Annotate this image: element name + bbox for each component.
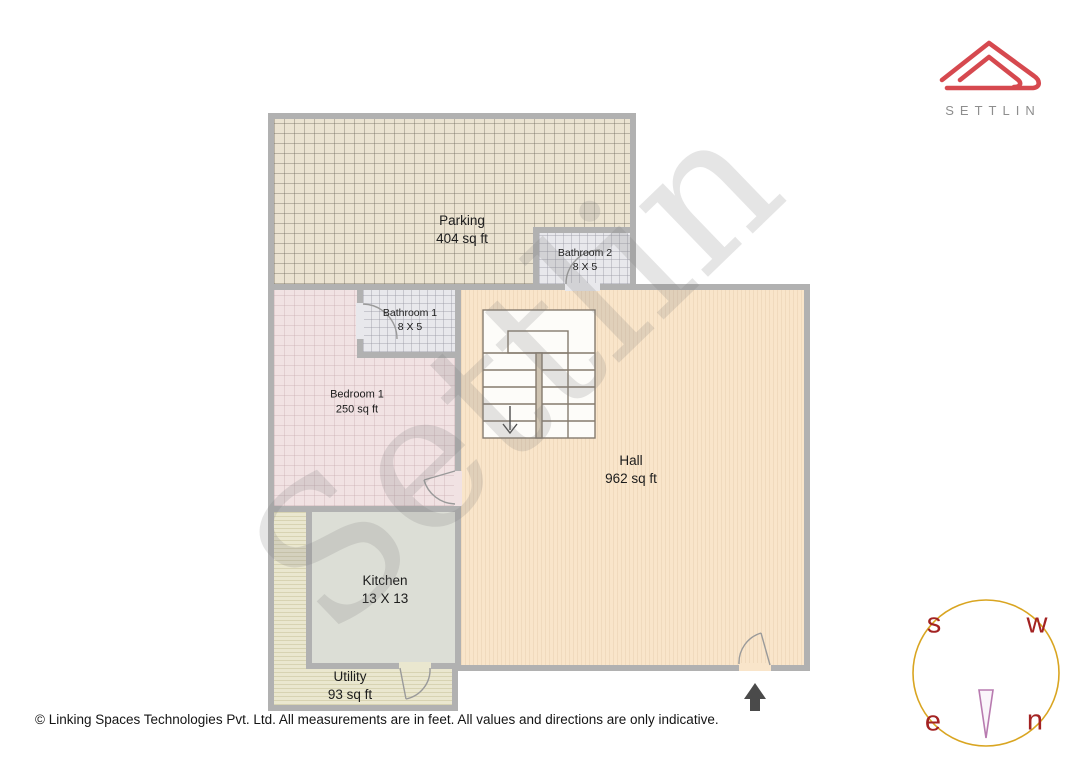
room-name: Hall bbox=[605, 452, 657, 470]
room-dims: 962 sq ft bbox=[605, 470, 657, 488]
compass-letter-s: s bbox=[927, 608, 942, 641]
compass-letter-e: e bbox=[925, 706, 941, 739]
hall-label: Hall 962 sq ft bbox=[605, 452, 657, 488]
bathroom1-door-gap bbox=[356, 303, 364, 339]
room-name: Bathroom 1 bbox=[383, 307, 437, 321]
bathroom2-door-gap bbox=[565, 283, 600, 291]
bathroom2-label: Bathroom 2 8 X 5 bbox=[558, 247, 612, 275]
room-dims: 404 sq ft bbox=[436, 230, 488, 248]
room-name: Bathroom 2 bbox=[558, 247, 612, 261]
bedroom-door-gap bbox=[454, 471, 462, 506]
settlin-logo-icon bbox=[930, 30, 1050, 96]
footer-disclaimer: © Linking Spaces Technologies Pvt. Ltd. … bbox=[35, 712, 719, 727]
kitchen-door-gap bbox=[399, 662, 431, 670]
brand-name: SETTLIN bbox=[925, 103, 1055, 118]
floor-plan-canvas: Settlin Parking 404 sq ft Bathroom 2 8 X… bbox=[0, 0, 1080, 764]
room-dims: 93 sq ft bbox=[328, 686, 372, 704]
room-name: Kitchen bbox=[362, 572, 409, 590]
settlin-brand: SETTLIN bbox=[925, 30, 1055, 118]
room-dims: 8 X 5 bbox=[383, 321, 437, 335]
bathroom1-label: Bathroom 1 8 X 5 bbox=[383, 307, 437, 335]
compass-needle-icon bbox=[979, 690, 993, 738]
utility-label: Utility 93 sq ft bbox=[328, 668, 372, 704]
room-name: Parking bbox=[436, 212, 488, 230]
room-name: Bedroom 1 bbox=[330, 387, 384, 402]
room-dims: 13 X 13 bbox=[362, 590, 409, 608]
entrance-arrow-icon bbox=[744, 683, 766, 711]
kitchen-label: Kitchen 13 X 13 bbox=[362, 572, 409, 608]
parking-label: Parking 404 sq ft bbox=[436, 212, 488, 248]
room-dims: 250 sq ft bbox=[330, 402, 384, 417]
room-dims: 8 X 5 bbox=[558, 261, 612, 275]
compass-letter-n: n bbox=[1027, 705, 1043, 738]
main-entrance-door-gap bbox=[739, 663, 771, 671]
room-name: Utility bbox=[328, 668, 372, 686]
bedroom1-label: Bedroom 1 250 sq ft bbox=[330, 387, 384, 416]
compass-letter-w: w bbox=[1027, 608, 1048, 641]
